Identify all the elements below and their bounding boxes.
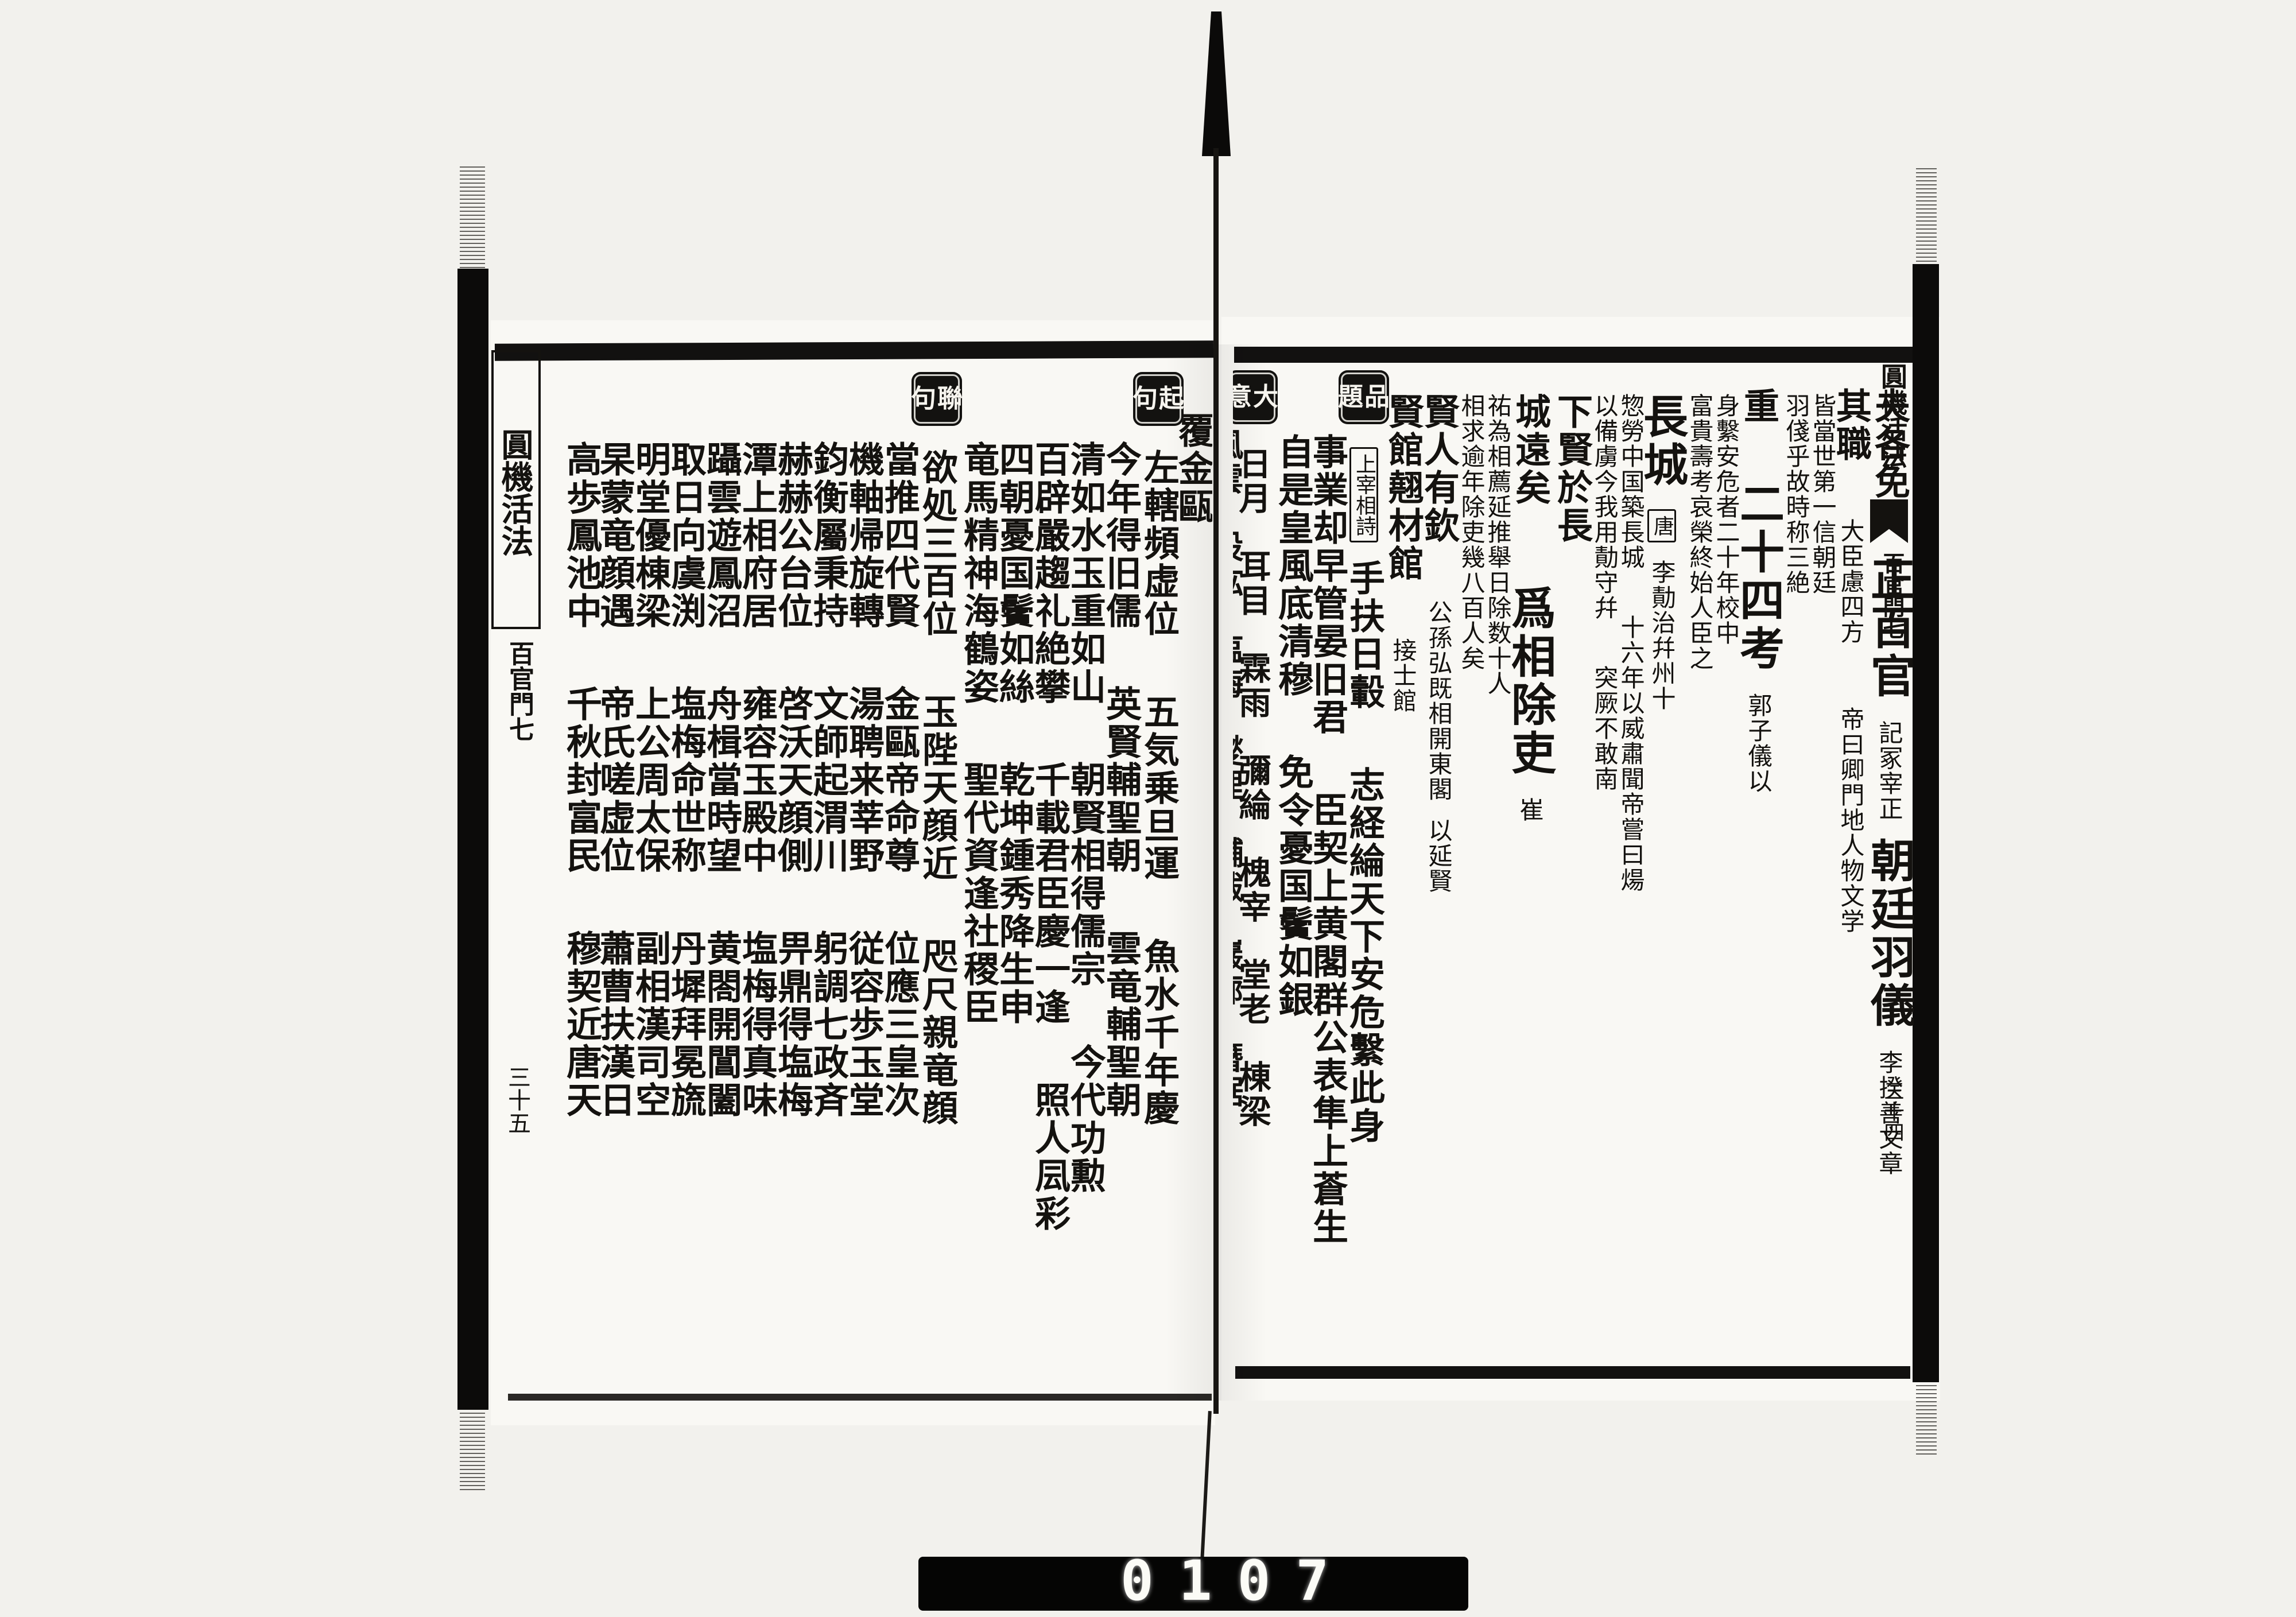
- frame-counter-digits: 0107: [1120, 1549, 1354, 1613]
- poem-line: 英賢輔聖朝: [1101, 685, 1140, 875]
- poem-line: 機軸帰旋轉: [844, 441, 883, 630]
- fold-line: [1213, 148, 1219, 1414]
- poem-line: 免令憂国鬢如銀: [1273, 754, 1312, 1019]
- term-word: 黼黻: [1233, 836, 1242, 905]
- spacer: [1047, 372, 1052, 441]
- commentary-small: 羽俴乎故時称三絶: [1783, 393, 1809, 595]
- text-column: 明堂優棟梁上公周太保副相漢司空: [634, 372, 669, 1398]
- page-edge-hatching-right-top: [1916, 165, 1937, 264]
- commentary-small: 以延賢: [1425, 818, 1452, 894]
- spacer: [1724, 370, 1728, 393]
- page-edge-hatching-left-top: [460, 164, 485, 269]
- text-column: 今年得旧儒英賢輔聖朝雲竜輔聖朝: [1104, 372, 1140, 1398]
- page-edge-hatching-left-bottom: [460, 1410, 485, 1490]
- poem-line: 躡雲遊鳳沼: [701, 441, 740, 630]
- term-word: 巖廊: [1233, 939, 1242, 1007]
- spacer: [861, 372, 866, 441]
- spacer: [790, 372, 794, 441]
- text-column: 潭上相府居雍容玉殿中塩梅得真味: [740, 372, 776, 1398]
- spacer: [612, 372, 616, 441]
- section-label-char: 聯: [937, 385, 963, 413]
- spacer: [1190, 372, 1195, 412]
- commentary-small: 身繫安危者二十年校中: [1713, 393, 1739, 646]
- text-column: 聯句欲処三百位玉陛天顔近咫尺親竜顔: [918, 372, 962, 1398]
- section-label-left-edge: 百官門七: [496, 641, 537, 742]
- poem-line: 明堂優棟梁: [630, 441, 669, 630]
- poem-line: 従容歩玉堂: [844, 930, 883, 1119]
- poem-line: 咫尺親竜顔: [917, 938, 956, 1127]
- spacer: [1083, 372, 1087, 441]
- poem-line: 四朝憂国鬢如絲: [994, 441, 1033, 706]
- spacer: [719, 372, 723, 441]
- poem-line: 鈞衡屬秉持: [808, 441, 847, 630]
- spacer: [1495, 370, 1500, 393]
- commentary-small: 帝曰卿門地人物文学: [1837, 707, 1864, 934]
- commentary-small: 祐為相薦延推舉日除数十人: [1484, 393, 1511, 696]
- term-word: 塩梅: [1233, 632, 1242, 701]
- spine-black-strip-right: [1913, 264, 1939, 1382]
- text-column: 鈞衡屬秉持文師起渭川躬調七政斉: [812, 372, 847, 1398]
- spacer: [754, 372, 759, 441]
- poem-line: 今年得旧儒: [1101, 441, 1140, 630]
- poem-line: 潭上相府居: [737, 441, 776, 630]
- poem-line: 塩梅命世称: [666, 685, 705, 875]
- term-word: 簪裾: [1233, 1041, 1242, 1110]
- text-column: 其職大臣慮四方帝曰卿門地人物文学: [1836, 370, 1870, 1370]
- poem-line: 舟楫當時望: [701, 685, 740, 875]
- commentary-small: 惣勞中国築長城: [1618, 393, 1644, 570]
- text-column: 四朝憂国鬢如絲乾坤鍾秀降生申: [998, 372, 1033, 1398]
- spacer: [579, 372, 583, 441]
- right-page-top-border-rule: [1234, 347, 1918, 363]
- text-column: 惣勞中国築長城十六年以威肅聞帝嘗曰煬: [1618, 370, 1644, 1370]
- text-column: 取日向虞渕塩梅命世称丹墀拜冕旒: [669, 372, 705, 1398]
- poem-line: 高歩鳳池中: [561, 441, 600, 630]
- commentary-small: 皆當世第一信朝廷: [1809, 393, 1836, 595]
- poem-line: 取日向虞渕: [666, 441, 705, 630]
- poem-line: 清如水玉重如山: [1065, 441, 1104, 706]
- spacer: [1848, 661, 1853, 707]
- spacer: [1569, 370, 1574, 393]
- commentary-small: 接士館: [1390, 638, 1416, 714]
- spacer: [1887, 370, 1891, 387]
- section-label-char: 起: [1159, 385, 1184, 413]
- poem-line: 黄閤開閶闔: [701, 930, 740, 1119]
- fold-line-lower: [1200, 1411, 1212, 1561]
- poem-line: 魚水千年慶: [1139, 938, 1178, 1127]
- poem-line: 左轄頻虚位: [1139, 449, 1178, 638]
- spacer: [897, 372, 901, 441]
- poem-line: 五気乗旦運: [1139, 693, 1178, 883]
- section-label-box: 大意: [1233, 370, 1278, 424]
- section-label-box: 品題: [1339, 370, 1389, 424]
- spacer: [1794, 370, 1798, 393]
- poem-line: 下賢於長: [1552, 393, 1591, 545]
- scanned-book-photo: { "meta": { "colors": { "ink": "#14120f"…: [0, 0, 2296, 1617]
- spacer: [1469, 370, 1473, 393]
- poem-line: 金甌帝命尊: [879, 685, 918, 875]
- spacer: [1325, 370, 1329, 433]
- spacer: [1527, 370, 1532, 393]
- spacer: [1602, 637, 1607, 665]
- section-label-char: 大: [1253, 383, 1278, 411]
- poem-line: 穆契近唐天: [561, 930, 600, 1119]
- text-column: 相求逾年除吏幾八百人矣: [1458, 370, 1484, 1370]
- left-page-top-border-rule: [495, 340, 1213, 360]
- commentary-small: 郭子儀以: [1745, 693, 1771, 794]
- text-column: 赫赫公台位啓沃天顔側畀鼎得塩梅: [776, 372, 812, 1398]
- poem-line: 塩梅得真味: [737, 930, 776, 1119]
- spacer: [1527, 562, 1532, 585]
- text-column: 賢館翹材館接士館: [1389, 370, 1422, 1370]
- poem-line: 湯聘来莘野: [844, 685, 883, 875]
- poem-line: 欲処三百位: [917, 449, 956, 638]
- spacer: [1011, 372, 1016, 441]
- text-column: 祐為相薦延推舉日除数十人: [1484, 370, 1511, 1370]
- poem-line: 照人凨彩: [1030, 1081, 1069, 1233]
- entry-headword-large: 朝廷羽儀: [1864, 837, 1914, 1030]
- spacer: [1401, 370, 1405, 393]
- entry-headword-large: 二十四考: [1733, 480, 1783, 673]
- text-column: 竜馬精神海鶴姿聖代資逢社稷臣: [962, 372, 998, 1398]
- text-column: 羽俴乎故時称三絶: [1783, 370, 1809, 1370]
- poem-line: 竜馬精神海鶴姿: [959, 441, 998, 706]
- spacer: [1848, 370, 1853, 387]
- poem-line: 今代功勲: [1065, 1044, 1104, 1195]
- poem-line: 乾坤鍾秀降生申: [994, 761, 1033, 1026]
- text-column: 躡雲遊鳳沼舟楫當時望黄閤開閶闔: [705, 372, 740, 1398]
- spacer: [1118, 372, 1123, 441]
- text-column: 百辟嚴趨礼絶攀千載君臣慶一逢照人凨彩: [1033, 372, 1069, 1398]
- poem-line: 朝賢相得儒宗: [1065, 761, 1104, 988]
- spacer: [1697, 370, 1702, 393]
- section-label-char: 品: [1364, 383, 1390, 411]
- text-column: 清如水玉重如山朝賢相得儒宗今代功勲: [1069, 372, 1104, 1398]
- microfilm-counter-strip: 0107: [918, 1557, 1468, 1611]
- commentary-small: 以備虜今我用勣守幷: [1591, 393, 1618, 621]
- book-title-left-edge: 圓機活法: [491, 350, 541, 629]
- poem-line: 其職: [1831, 387, 1870, 463]
- spacer: [1290, 370, 1295, 433]
- text-column: 杲蒙竜顔遇帝氏嗟虚位蕭曹扶漢日: [600, 372, 634, 1398]
- text-column: 長城唐李勣治幷州十: [1644, 370, 1686, 1370]
- text-column: 機軸帰旋轉湯聘来莘野従容歩玉堂: [847, 372, 883, 1398]
- poem-line: 文師起渭川: [808, 685, 847, 875]
- poem-line: 畀鼎得塩梅: [773, 930, 812, 1119]
- source-tag: 唐: [1647, 509, 1676, 542]
- term-word: 風雲: [1233, 428, 1242, 497]
- poem-line: 上公周太保: [630, 685, 669, 875]
- entry-headword-large: 爲相除吏: [1505, 585, 1554, 778]
- section-label-box: 起句: [1133, 372, 1184, 426]
- poem-line: 赫赫公台位: [773, 441, 812, 630]
- text-column: 富貴壽考哀榮終始人臣之: [1686, 370, 1713, 1370]
- poem-line: 手扶日轂: [1344, 560, 1383, 711]
- text-column: 賢人有欽公孫弘既相開東閣以延賢: [1422, 370, 1458, 1370]
- spacer: [1602, 370, 1607, 393]
- poem-line: 雍容玉殿中: [737, 685, 776, 875]
- fold-top-wedge: [1202, 11, 1231, 156]
- poem-line: 自是皇風底清穆: [1273, 433, 1312, 699]
- spacer: [1628, 370, 1633, 393]
- term-word: 燮理: [1233, 734, 1242, 803]
- text-column: 起句左轄頻虚位五気乗旦運魚水千年慶: [1140, 372, 1184, 1398]
- commentary-small: 崔: [1517, 797, 1543, 823]
- commentary-small: 記冢宰正: [1876, 720, 1902, 821]
- poem-line: 雲竜輔聖朝: [1101, 930, 1140, 1119]
- commentary-small: 十六年以威肅聞帝嘗曰煬: [1618, 615, 1644, 893]
- poem-line: 城遠矣: [1510, 393, 1549, 507]
- text-column: 覆金甌: [1184, 372, 1212, 1398]
- spacer: [825, 372, 830, 441]
- poem-line: 當推四代賢: [879, 441, 918, 630]
- text-column: 當推四代賢金甌帝命尊位應三皇次: [883, 372, 918, 1398]
- entry-headword-large: 正百官: [1864, 556, 1914, 701]
- spacer: [647, 372, 652, 441]
- text-column: 身繫安危者二十年校中: [1713, 370, 1739, 1370]
- poem-line: 副相漢司空: [630, 930, 669, 1119]
- spacer: [976, 372, 980, 441]
- text-column: 夫各免正百官記冢宰正朝廷羽儀李揆善文章: [1870, 370, 1914, 1370]
- poem-line: 位應三皇次: [879, 930, 918, 1119]
- poem-line: 聖代資逢社稷臣: [959, 761, 998, 1026]
- poem-line: 志経綸天下安危繫此身: [1344, 766, 1383, 1145]
- text-column: 以備虜今我用勣守幷突厥不敢南: [1591, 370, 1618, 1370]
- poem-line: 重: [1739, 387, 1778, 425]
- commentary-small: 大臣慮四方: [1837, 518, 1864, 645]
- text-column: 重二十四考郭子儀以: [1739, 370, 1783, 1370]
- spacer: [1756, 370, 1760, 387]
- page-edge-hatching-right-bottom: [1916, 1382, 1937, 1457]
- spacer: [683, 372, 688, 441]
- commentary-small: 突厥不敢南: [1591, 665, 1618, 792]
- commentary-small: 相求逾年除吏幾八百人矣: [1458, 393, 1484, 671]
- poem-line: 百辟嚴趨礼絶攀: [1030, 441, 1069, 706]
- spacer: [1436, 370, 1441, 393]
- spacer: [1628, 586, 1633, 615]
- poem-line: 千載君臣慶一逢: [1030, 761, 1069, 1026]
- poem-line: 夫各免: [1870, 387, 1909, 501]
- commentary-small: 公孫弘既相開東閣: [1425, 600, 1452, 802]
- source-tag: 上宰相詩: [1349, 447, 1378, 542]
- spine-black-strip-left: [457, 269, 488, 1410]
- section-label-box: 聯句: [912, 372, 962, 426]
- left-page-text-block: 覆金甌起句左轄頻虚位五気乗旦運魚水千年慶今年得旧儒英賢輔聖朝雲竜輔聖朝清如水玉重…: [538, 372, 1212, 1398]
- commentary-small: 富貴壽考哀榮終始人臣之: [1686, 393, 1713, 671]
- section-label-char: 意: [1233, 383, 1252, 411]
- page-number-left: 三十五: [502, 1065, 534, 1134]
- text-column: 城遠矣爲相除吏崔: [1511, 370, 1554, 1370]
- poem-line: 丹墀拜冕旒: [666, 930, 705, 1119]
- text-column: 事業却早管晏旧君臣契上黄閣群公表隼上蒼生: [1312, 370, 1347, 1370]
- text-column: 下賢於長: [1554, 370, 1591, 1370]
- right-page-text-block: 夫各免正百官記冢宰正朝廷羽儀李揆善文章其職大臣慮四方帝曰卿門地人物文学皆當世第一…: [1233, 370, 1914, 1370]
- poem-line: 玉陛天顔近: [917, 693, 956, 883]
- term-word: 股肱: [1233, 530, 1242, 599]
- poem-line: 賢人有欽: [1419, 393, 1458, 545]
- spacer: [1659, 370, 1664, 393]
- commentary-small: 李揆善文章: [1876, 1050, 1902, 1176]
- poem-line: 啓沃天顔側: [773, 685, 812, 875]
- poem-line: 躬調七政斉: [808, 930, 847, 1119]
- spacer: [1820, 370, 1825, 393]
- poem-line: 賢館翹材館: [1383, 393, 1422, 583]
- poem-line: 千秋封富民: [561, 685, 600, 875]
- commentary-small: 李勣治幷州十: [1649, 560, 1675, 711]
